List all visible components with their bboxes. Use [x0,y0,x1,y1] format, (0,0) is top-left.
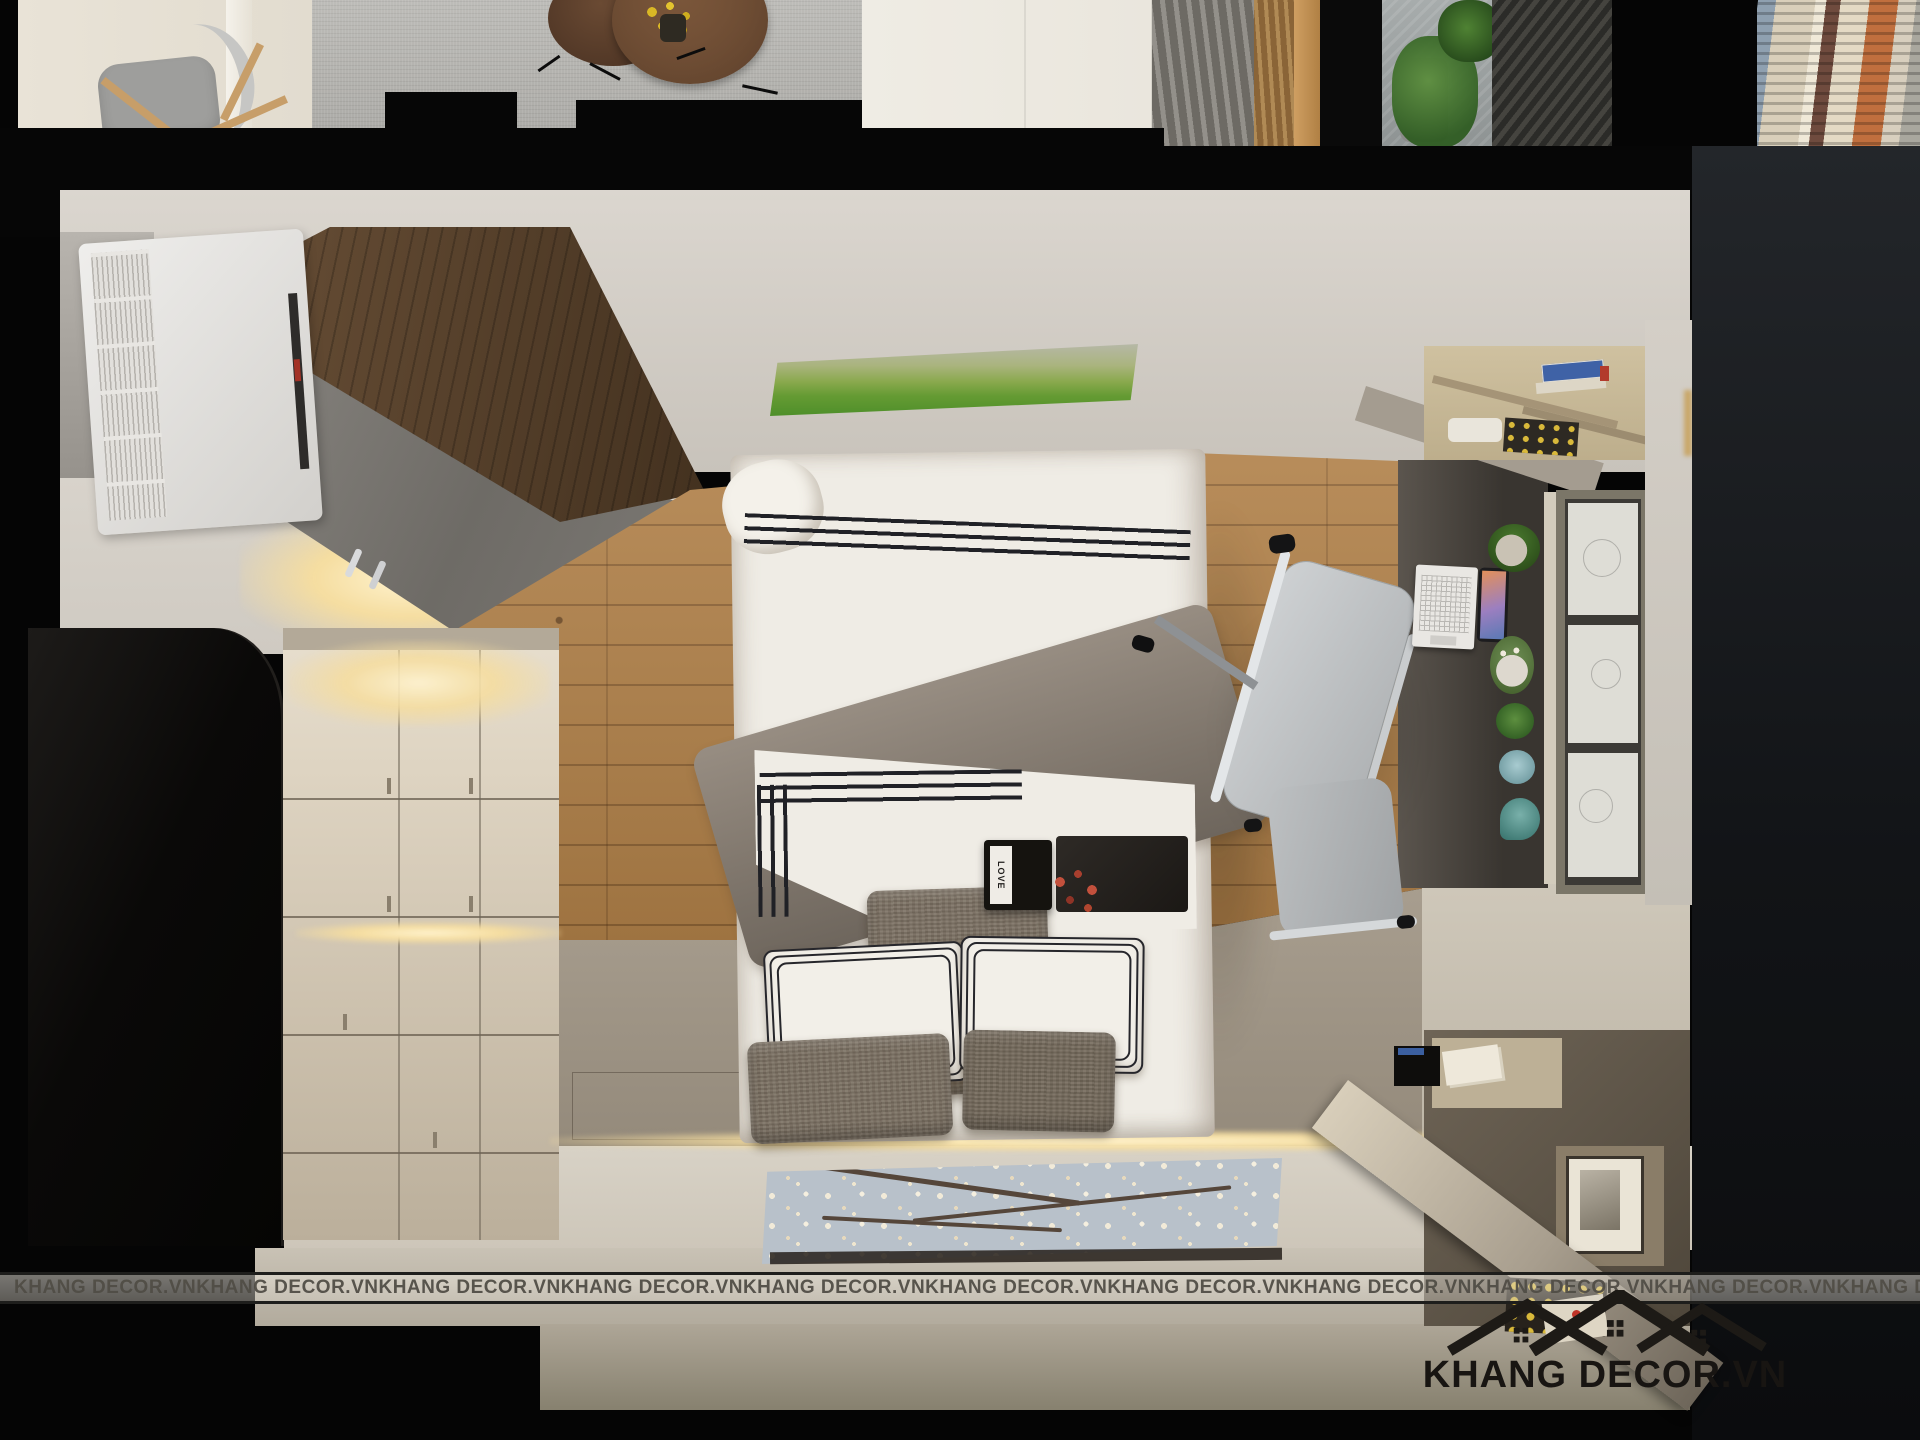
flower-vase [660,14,686,42]
duvet-border-lines [760,769,1022,807]
louver-panel [1492,0,1624,160]
wall-sliver [1294,0,1320,152]
city-buildings [1757,0,1920,148]
tablet [1477,567,1510,642]
black-wardrobe [28,628,284,1246]
caster-wheel [1396,915,1415,930]
wall-top-band [576,100,862,142]
drawer-gap [283,798,559,800]
watermark-text: KHANG DECOR.VN [378,1277,560,1299]
bedroom-render: LOVE KHANG DECOR.VN KHANG DECOR.VN KHANG… [0,0,1920,1440]
desk-plant [1496,703,1534,739]
wall-top-band [385,92,517,138]
charcoal-wardrobe-right [1692,146,1920,1440]
bedroom-window [1556,490,1650,894]
brown-pillow [962,1030,1116,1133]
desk-plant-teal-pot [1500,798,1540,840]
watermark-text: KHANG DECOR.VN [743,1277,925,1299]
drawer-handle [387,778,391,794]
caster-wheel [1268,533,1296,554]
watermark-text: KHANG DECOR.VN [14,1277,196,1299]
laptop [1412,564,1478,649]
city-window-view [1757,0,1920,148]
red-flower-decor [1044,862,1112,922]
book-red [1600,366,1609,381]
watermark-text: KHANG DECOR.VN [196,1277,378,1299]
blue-book-edge [1398,1048,1424,1055]
brown-pillow [747,1033,954,1145]
watermark-text: KHANG DECOR.VN [1836,1277,1920,1299]
tablet-screen [1480,571,1506,640]
cabinet-light-pool [288,640,550,726]
guest-chair-seat [1266,776,1405,938]
logo-text: KHANG DECOR.VN [1405,1354,1805,1397]
caster-wheel [1243,818,1262,833]
blossom-branch [913,1185,1232,1222]
drawer-handle [469,778,473,794]
watermark-text: KHANG DECOR.VN [925,1277,1107,1299]
desk-plant-cactus [1488,524,1540,572]
three-house-roofs-icon [1440,1290,1770,1356]
drawer-handle [469,896,473,912]
drawer-gap [398,650,400,1240]
drawer-gap [283,1034,559,1036]
desk-plant-succulent [1499,750,1535,784]
drawer-handle [343,1014,347,1030]
desk-plant-blossom [1490,636,1534,694]
laptop-keyboard [1419,575,1472,634]
guest-chair [1232,766,1429,954]
curtain-gray [1152,0,1254,150]
curtain-tan [1254,0,1294,150]
dotted-box [1503,417,1579,456]
shelf-cups [1448,418,1502,442]
khang-decor-logo: KHANG DECOR.VN [1405,1290,1805,1420]
drawer-handle [433,1132,437,1148]
decor-box-label: LOVE [990,846,1012,904]
ac-vent-grille [91,249,168,520]
window-decal-circle [1579,789,1613,823]
duvet-border-lines [757,785,789,917]
double-bed [730,449,1215,1144]
drawer-gap [479,650,481,1240]
drawer-gap [283,916,559,918]
drawer-handle [387,896,391,912]
picture-sketch [1580,1170,1620,1230]
hallway-tile-floor [862,0,1152,128]
window-decal-circle [1591,659,1621,689]
window-decal-circle [1583,539,1621,577]
drawer-gap [283,1152,559,1154]
watermark-text: KHANG DECOR.VN [561,1277,743,1299]
laptop-trackpad [1430,635,1456,645]
warm-light-edge [1684,390,1692,456]
watermark-text: KHANG DECOR.VN [1107,1277,1289,1299]
air-conditioner [78,229,323,536]
wall-gap [1320,0,1382,154]
led-strip-glow [296,922,562,944]
